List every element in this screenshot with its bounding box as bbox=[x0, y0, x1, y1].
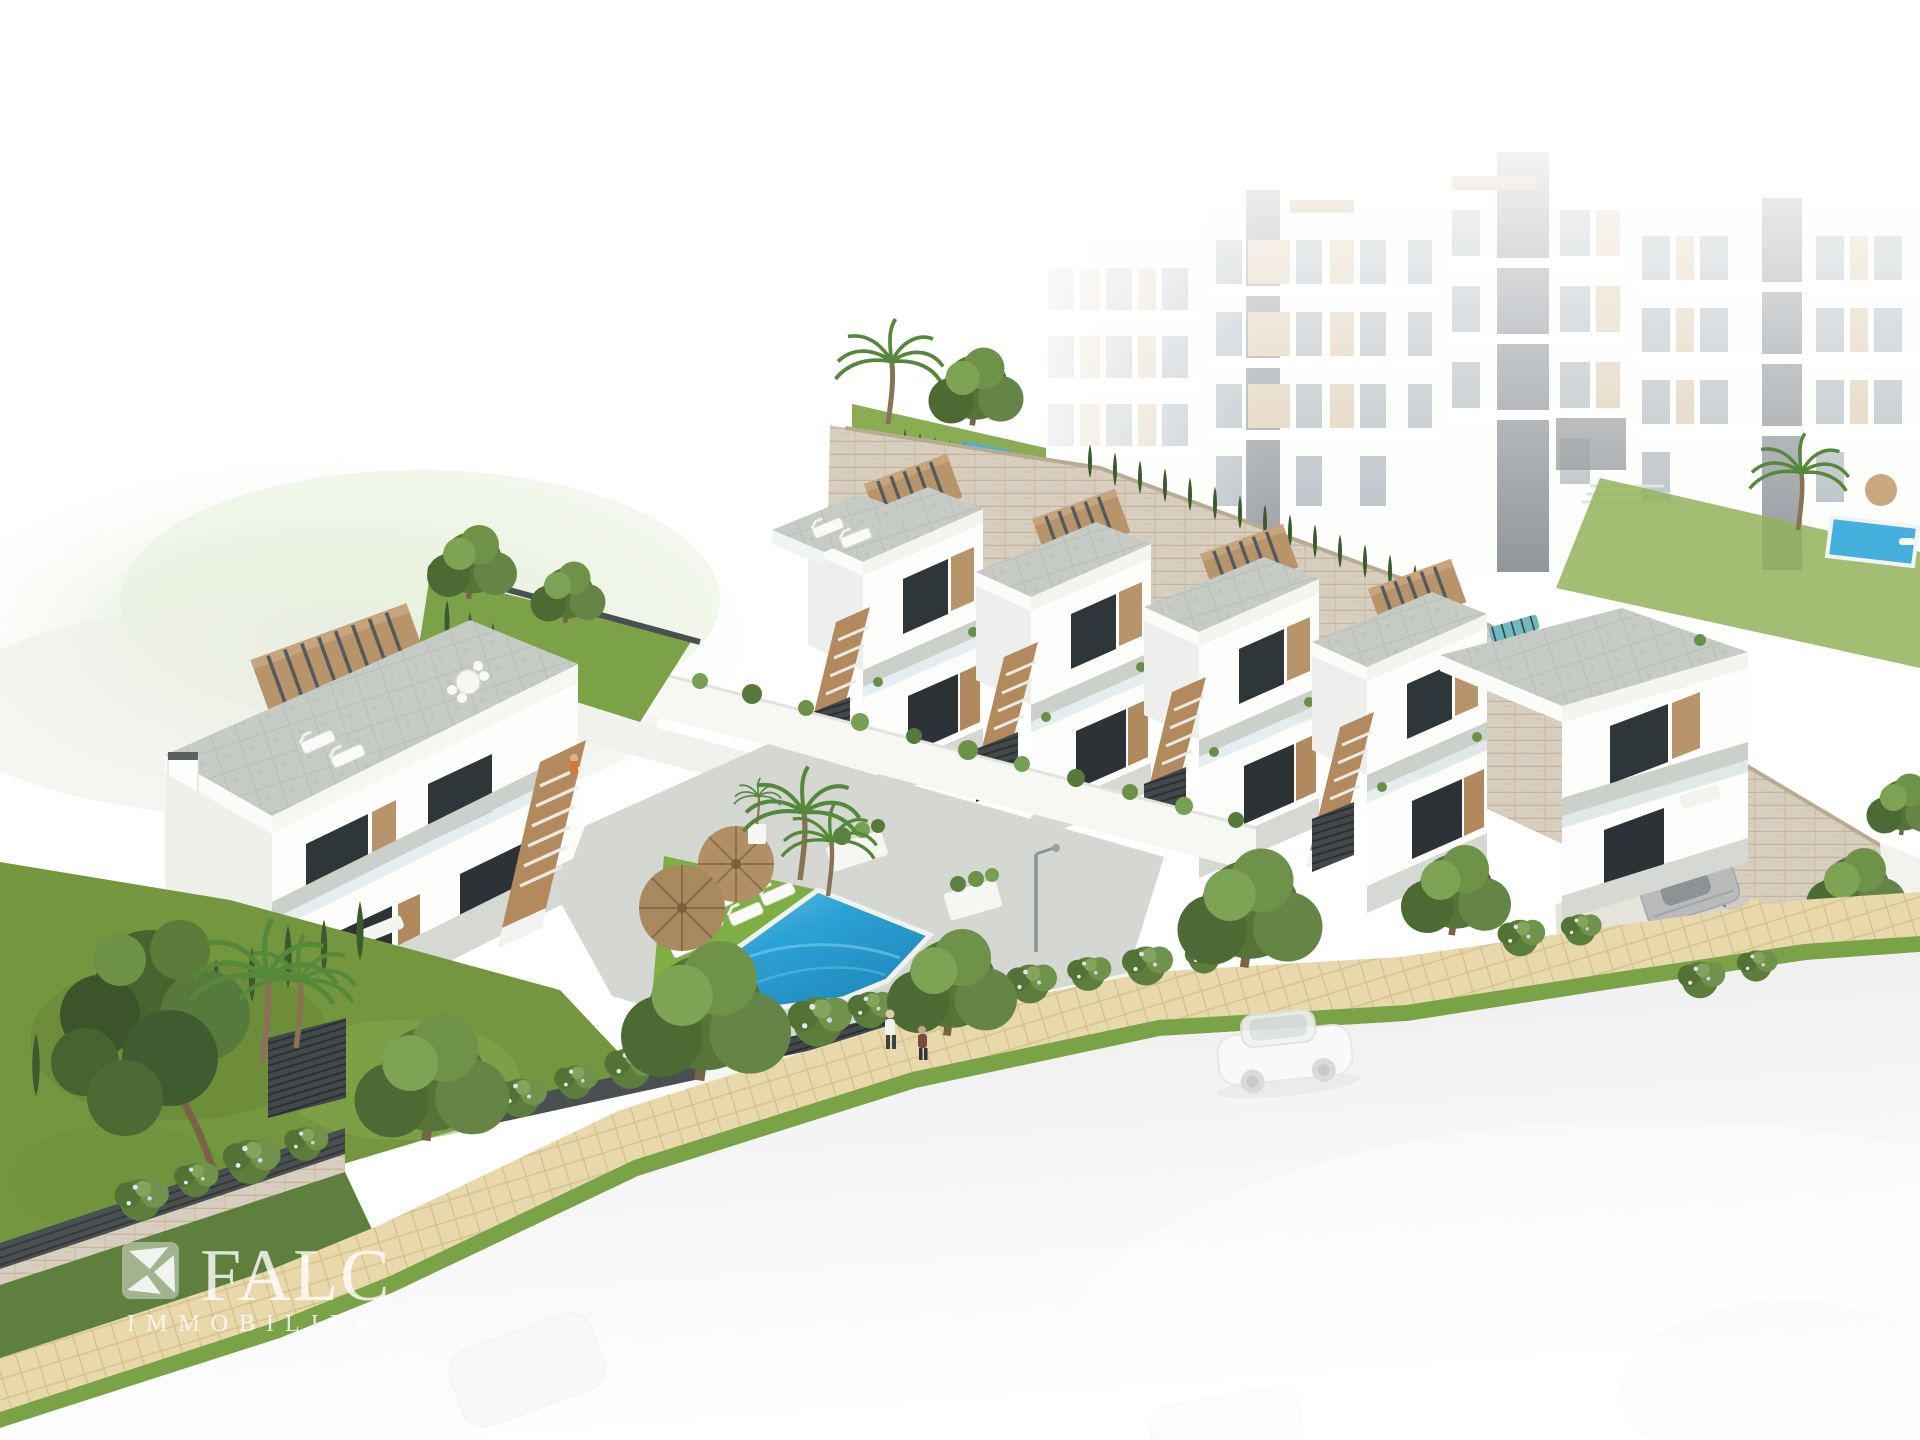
person-on-stair bbox=[570, 754, 578, 774]
brand-name: FALC bbox=[200, 1235, 392, 1317]
brand-subtitle: IMMOBILIEN bbox=[127, 1311, 384, 1337]
right-garden-parasol bbox=[1865, 474, 1897, 506]
brand-logo bbox=[122, 1242, 179, 1299]
architectural-rendering: FALC IMMOBILIEN bbox=[0, 0, 1920, 1440]
watermark: FALC IMMOBILIEN bbox=[122, 1235, 392, 1337]
parasol bbox=[639, 865, 725, 951]
render-canvas: FALC IMMOBILIEN bbox=[0, 0, 1920, 1440]
